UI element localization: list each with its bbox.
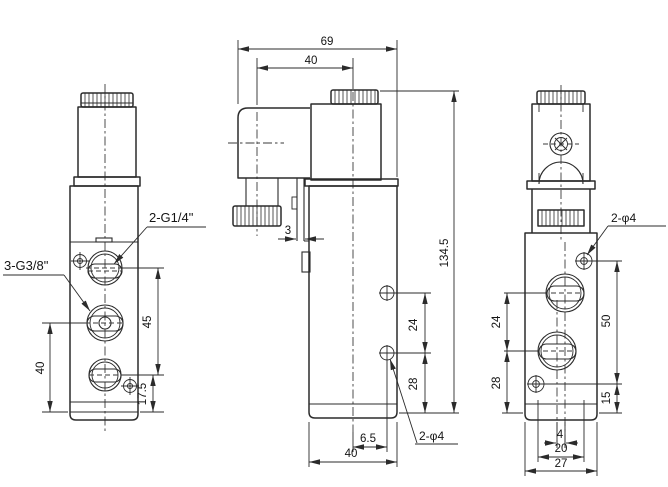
left-dim-45: 45 [142,316,154,329]
drawing-canvas: 45 17.5 40 2-G1/4" 3-G3/8" [0,0,668,487]
middle-dim-69: 69 [321,36,334,48]
middle-dim-40-bottom: 40 [345,448,358,460]
right-dim-4: 4 [557,429,564,441]
right-dim-15: 15 [601,392,613,405]
valve-drawing: 45 17.5 40 2-G1/4" 3-G3/8" [0,0,668,487]
left-dim-40: 40 [35,362,47,375]
middle-dim-24: 24 [408,318,420,331]
right-dim-27: 27 [555,458,568,470]
right-hole-callout: 2-φ4 [611,211,636,225]
left-label-g38: 3-G3/8" [4,258,49,273]
middle-dim-6-5: 6.5 [360,433,376,445]
right-dim-24: 24 [491,315,503,328]
right-dim-28: 28 [491,377,503,390]
middle-dim-134-5: 134.5 [439,239,451,268]
right-dim-50: 50 [601,315,613,328]
left-dim-17-5: 17.5 [137,383,149,405]
middle-dim-3: 3 [285,225,291,237]
right-dim-20: 20 [555,443,568,455]
middle-dim-40-top: 40 [305,55,318,67]
drawing-background [0,0,668,487]
middle-hole-callout: 2-φ4 [419,429,444,443]
middle-dim-28: 28 [408,378,420,391]
left-label-g14: 2-G1/4" [149,210,194,225]
